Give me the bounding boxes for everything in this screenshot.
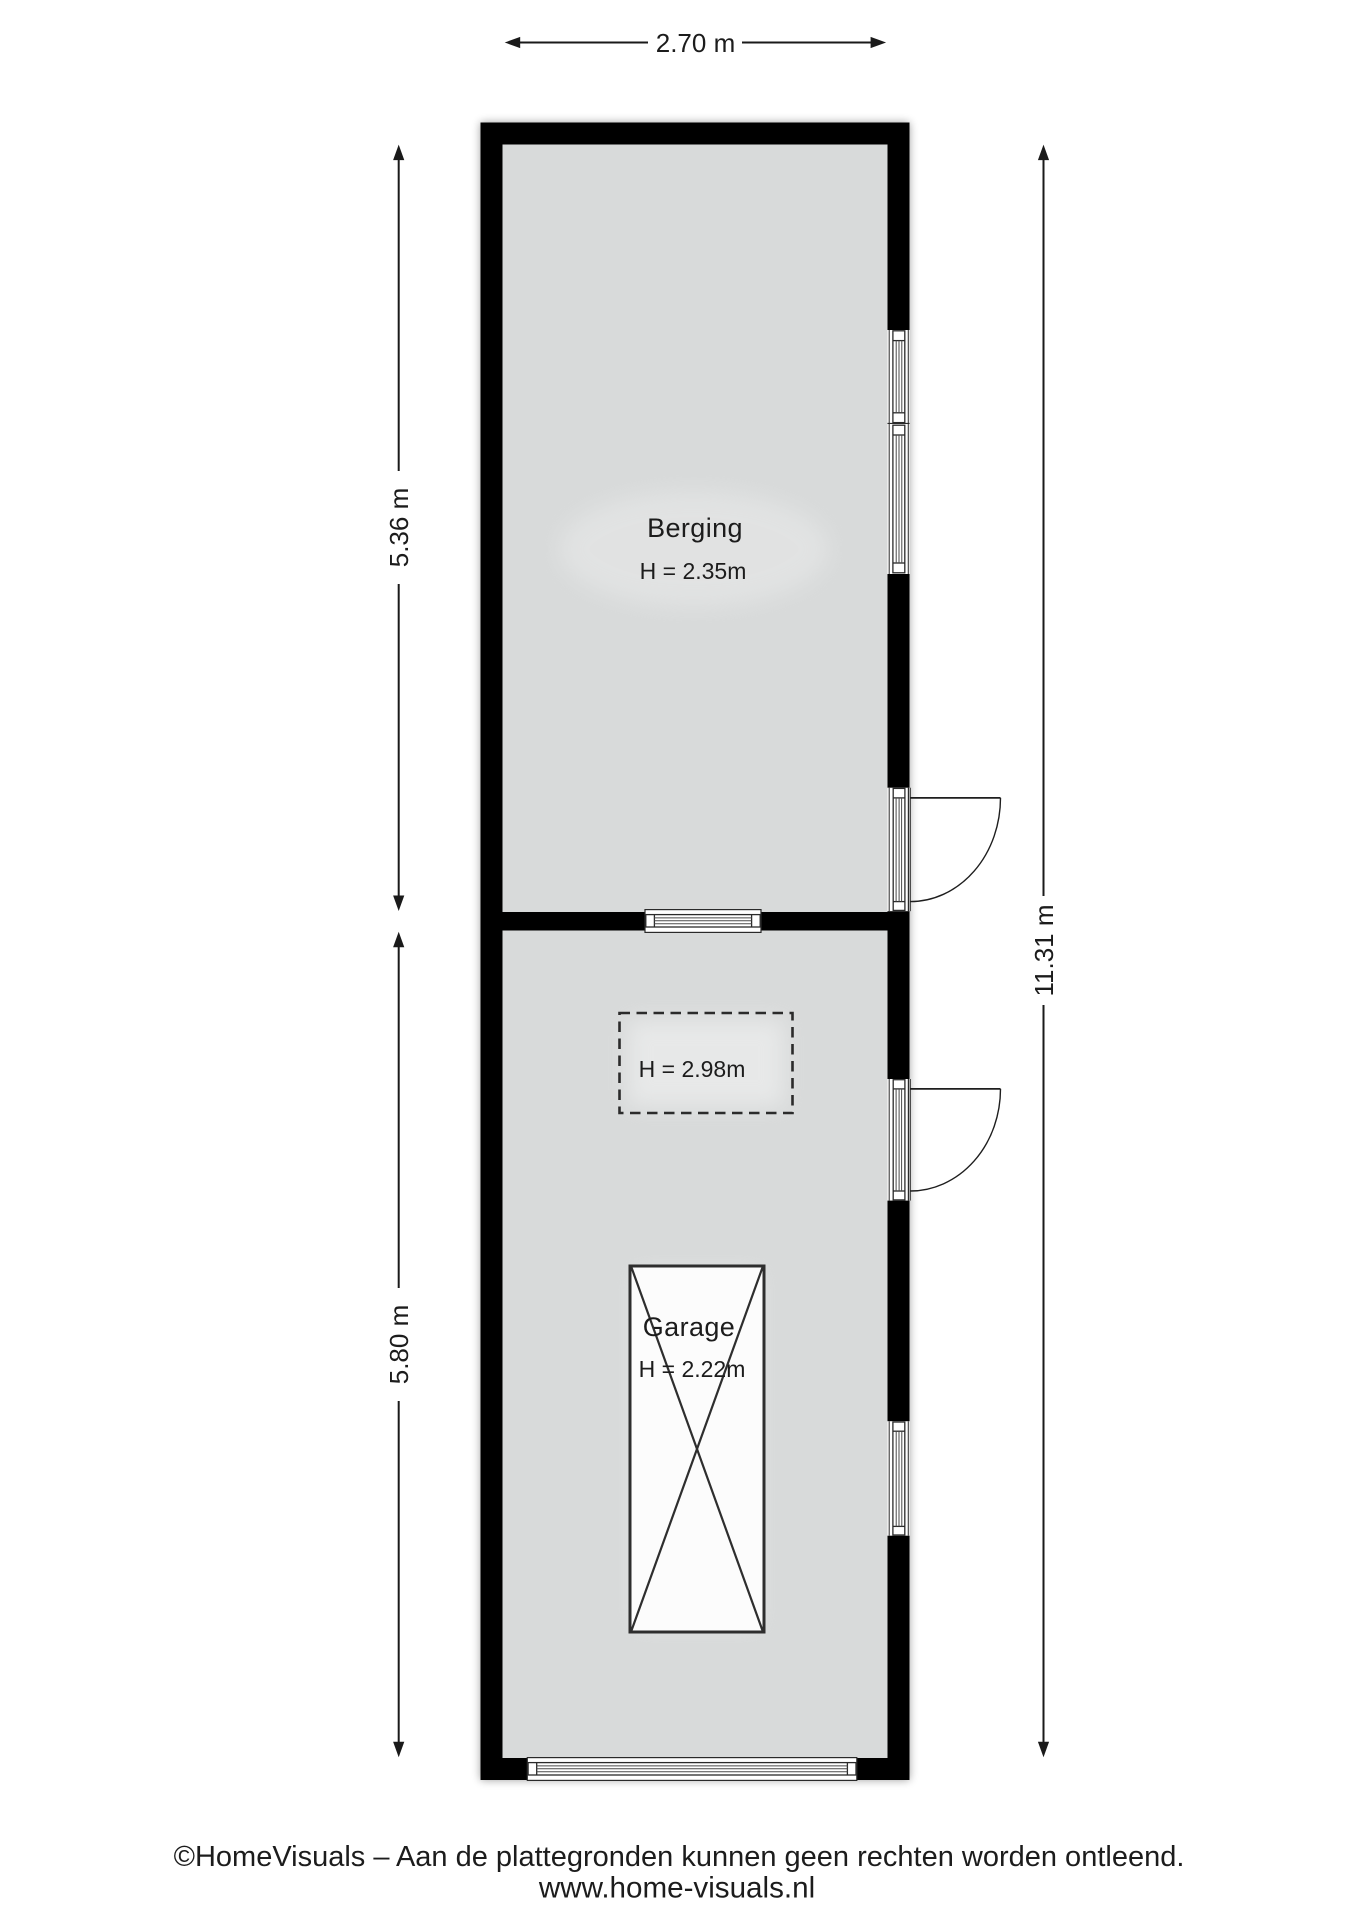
svg-text:Garage: Garage bbox=[643, 1312, 735, 1342]
svg-text:©HomeVisuals – Aan de plattegr: ©HomeVisuals – Aan de plattegronden kunn… bbox=[174, 1841, 1185, 1873]
svg-text:Berging: Berging bbox=[647, 513, 743, 543]
svg-text:11.31 m: 11.31 m bbox=[1029, 904, 1059, 996]
svg-text:H = 2.35m: H = 2.35m bbox=[640, 558, 747, 584]
svg-text:H = 2.98m: H = 2.98m bbox=[639, 1056, 746, 1082]
svg-text:2.70 m: 2.70 m bbox=[656, 28, 736, 58]
svg-text:www.home-visuals.nl: www.home-visuals.nl bbox=[538, 1872, 815, 1905]
svg-text:H = 2.22m: H = 2.22m bbox=[639, 1356, 746, 1382]
svg-text:5.80 m: 5.80 m bbox=[384, 1305, 414, 1385]
svg-text:5.36 m: 5.36 m bbox=[384, 488, 414, 568]
